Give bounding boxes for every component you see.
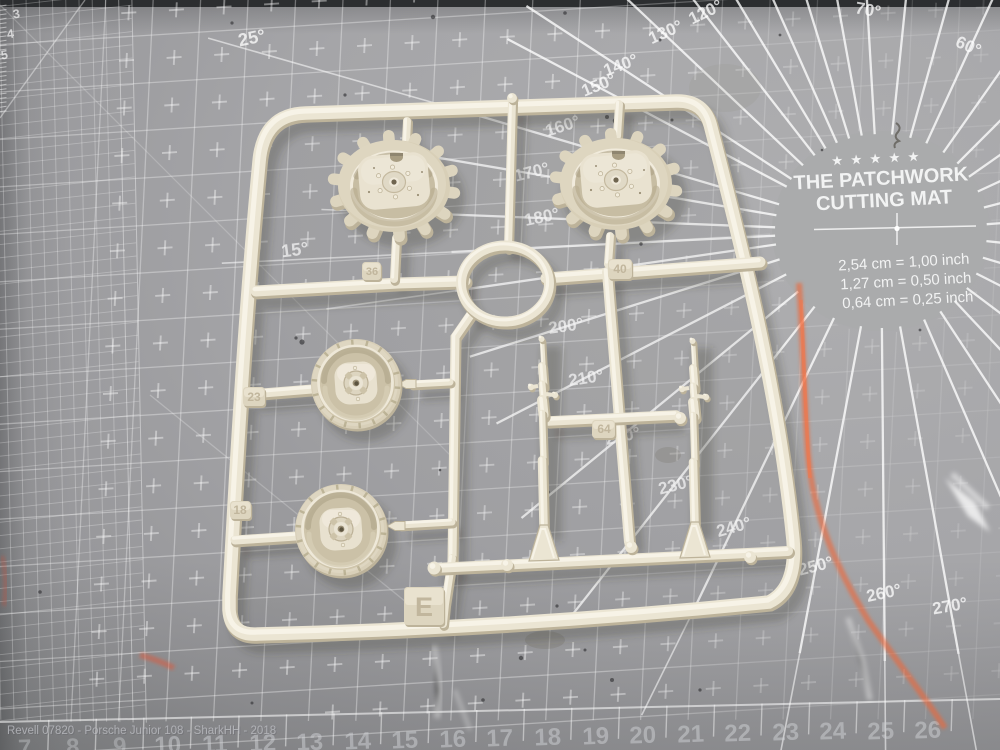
svg-text:22: 22 — [724, 720, 752, 748]
svg-text:36: 36 — [366, 266, 378, 278]
svg-text:18: 18 — [233, 503, 247, 517]
svg-text:64: 64 — [597, 422, 611, 436]
svg-text:25: 25 — [867, 718, 895, 746]
svg-text:14: 14 — [344, 728, 372, 750]
svg-text:Revell 07820 - Porsche Junior: Revell 07820 - Porsche Junior 108 - Shar… — [7, 725, 276, 737]
svg-text:23: 23 — [772, 719, 800, 747]
svg-text:40: 40 — [613, 262, 627, 276]
svg-text:20: 20 — [629, 722, 657, 750]
svg-text:E: E — [415, 592, 433, 622]
svg-text:24: 24 — [819, 718, 847, 746]
svg-text:15: 15 — [391, 727, 419, 750]
svg-text:13: 13 — [296, 729, 324, 750]
svg-text:18: 18 — [534, 724, 562, 750]
svg-text:16: 16 — [439, 726, 467, 750]
svg-text:19: 19 — [582, 723, 610, 750]
svg-text:23: 23 — [247, 390, 261, 404]
svg-text:21: 21 — [677, 721, 705, 749]
svg-text:17: 17 — [486, 725, 514, 750]
